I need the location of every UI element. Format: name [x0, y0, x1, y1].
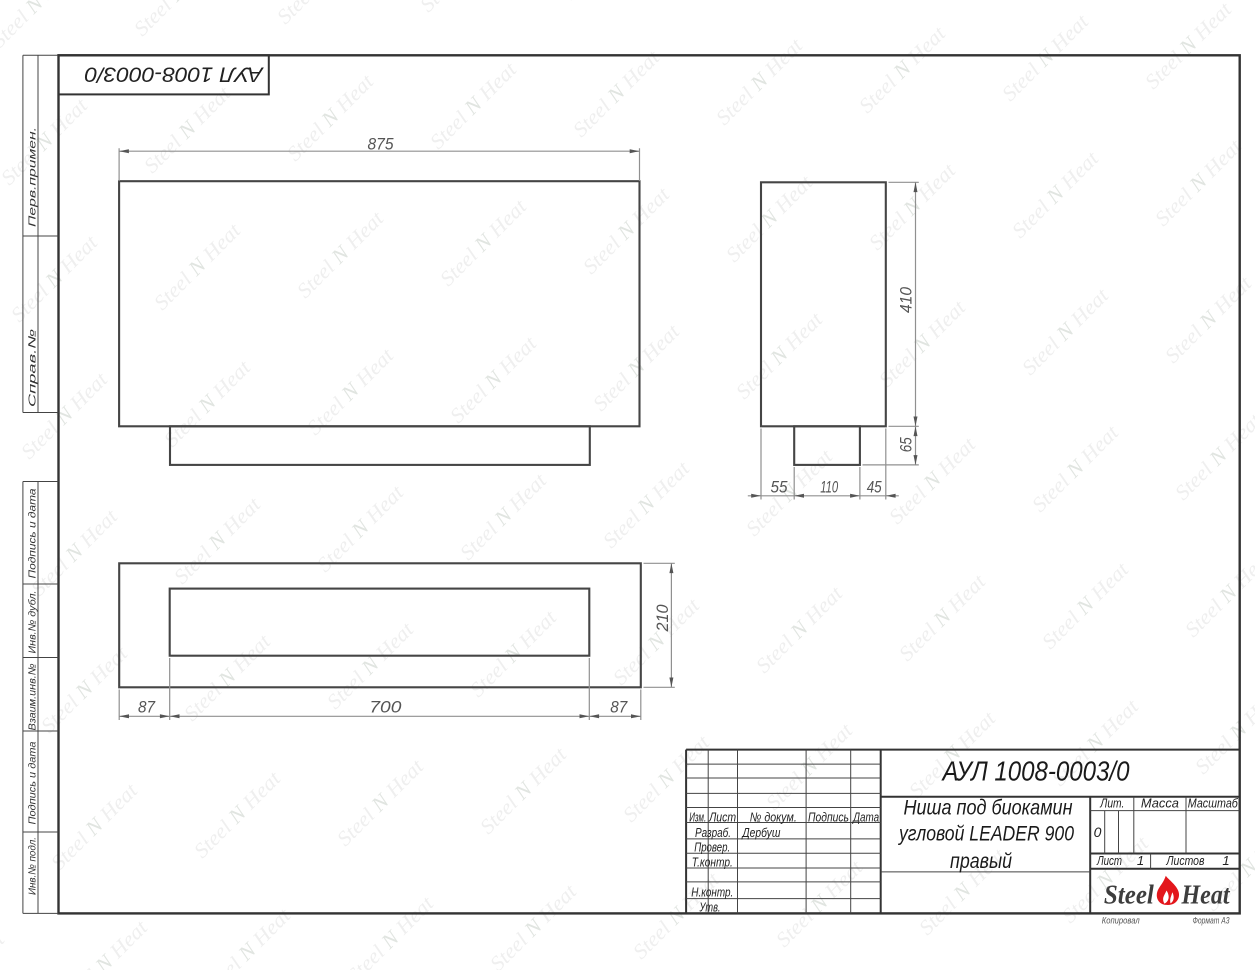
svg-text:Steel N Heat: Steel N Heat: [46, 778, 143, 875]
svg-text:правый: правый: [950, 849, 1012, 873]
svg-text:Подпись и дата: Подпись и дата: [26, 741, 38, 824]
svg-text:АУЛ 1008-0003/0: АУЛ 1008-0003/0: [941, 756, 1130, 787]
svg-text:Steel N Heat: Steel N Heat: [485, 879, 582, 970]
svg-text:Steel N Heat: Steel N Heat: [0, 927, 10, 970]
svg-text:Steel N Heat: Steel N Heat: [731, 307, 828, 404]
svg-text:Steel N Heat: Steel N Heat: [26, 504, 123, 601]
svg-text:Лит.: Лит.: [1100, 796, 1125, 811]
svg-text:Steel N Heat: Steel N Heat: [761, 718, 858, 815]
svg-text:Steel N Heat: Steel N Heat: [292, 206, 389, 303]
svg-text:Лист: Лист: [708, 809, 736, 824]
svg-text:Ниша под биокамин: Ниша под биокамин: [904, 796, 1073, 820]
svg-text:Steel N Heat: Steel N Heat: [302, 343, 399, 440]
svg-text:Масса: Масса: [1141, 796, 1179, 811]
svg-text:45: 45: [867, 478, 882, 497]
svg-text:угловой LEADER 900: угловой LEADER 900: [897, 822, 1074, 846]
svg-text:Steel N Heat: Steel N Heat: [1210, 956, 1255, 970]
svg-text:Steel N Heat: Steel N Heat: [0, 93, 93, 190]
svg-text:Steel N Heat: Steel N Heat: [894, 569, 991, 666]
svg-text:Steel N Heat: Steel N Heat: [149, 218, 246, 315]
svg-text:Steel N Heat: Steel N Heat: [588, 319, 685, 416]
svg-text:410: 410: [896, 287, 915, 313]
svg-text:Steel N Heat: Steel N Heat: [1180, 545, 1255, 642]
svg-text:Steel N Heat: Steel N Heat: [56, 915, 153, 970]
svg-text:Взаим.инв.№: Взаим.инв.№: [26, 664, 38, 731]
svg-text:Утв.: Утв.: [699, 899, 721, 914]
svg-text:Steel N Heat: Steel N Heat: [568, 45, 665, 142]
svg-text:Steel N Heat: Steel N Heat: [455, 468, 552, 565]
svg-text:Провер.: Провер.: [694, 840, 730, 855]
svg-text:№ докум.: № докум.: [750, 809, 797, 824]
svg-text:Steel: Steel: [1104, 880, 1154, 910]
svg-text:Н.контр.: Н.контр.: [691, 885, 733, 900]
svg-text:Steel N Heat: Steel N Heat: [475, 742, 572, 839]
svg-text:Steel N Heat: Steel N Heat: [1027, 420, 1124, 517]
svg-text:Разраб.: Разраб.: [695, 825, 731, 840]
svg-text:Steel N Heat: Steel N Heat: [435, 194, 532, 291]
svg-text:Копировал: Копировал: [1102, 916, 1140, 926]
svg-text:Инв.№ подл.: Инв.№ подл.: [26, 837, 38, 895]
svg-text:Подпись: Подпись: [808, 809, 849, 824]
svg-text:Дербуш: Дербуш: [741, 825, 781, 840]
svg-text:0: 0: [1094, 824, 1102, 840]
svg-text:Steel N Heat: Steel N Heat: [1150, 134, 1247, 231]
svg-text:Листов: Листов: [1166, 853, 1205, 868]
svg-text:Steel N Heat: Steel N Heat: [1190, 682, 1255, 779]
svg-text:Steel N Heat: Steel N Heat: [445, 331, 542, 428]
svg-text:Steel N Heat: Steel N Heat: [312, 480, 409, 577]
svg-text:Steel N Heat: Steel N Heat: [997, 9, 1094, 106]
svg-text:87: 87: [610, 698, 627, 717]
svg-text:Steel N Heat: Steel N Heat: [332, 754, 429, 851]
svg-text:Steel N Heat: Steel N Heat: [169, 492, 266, 589]
svg-text:65: 65: [896, 437, 915, 452]
svg-text:Steel N Heat: Steel N Heat: [159, 355, 256, 452]
svg-text:1: 1: [1222, 853, 1229, 868]
svg-text:110: 110: [820, 478, 838, 497]
svg-text:Steel N Heat: Steel N Heat: [864, 158, 961, 255]
svg-text:Steel N Heat: Steel N Heat: [771, 855, 868, 952]
svg-text:Steel N Heat: Steel N Heat: [578, 182, 675, 279]
svg-text:875: 875: [368, 135, 394, 154]
svg-text:Изм.: Изм.: [689, 809, 706, 824]
svg-text:Steel N Heat: Steel N Heat: [189, 766, 286, 863]
svg-text:Steel N Heat: Steel N Heat: [598, 456, 695, 553]
svg-text:Steel N Heat: Steel N Heat: [425, 57, 522, 154]
svg-text:Подпись и дата: Подпись и дата: [26, 488, 38, 578]
svg-text:Steel N Heat: Steel N Heat: [904, 706, 1001, 803]
svg-text:Дата: Дата: [852, 809, 880, 824]
svg-text:700: 700: [369, 698, 402, 717]
svg-text:Справ.№: Справ.№: [26, 329, 38, 407]
svg-text:Steel N Heat: Steel N Heat: [1037, 557, 1134, 654]
svg-text:Steel N Heat: Steel N Heat: [6, 230, 103, 327]
svg-text:Т.контр.: Т.контр.: [692, 855, 733, 870]
svg-text:Steel N Heat: Steel N Heat: [1017, 283, 1114, 380]
svg-text:Steel N Heat: Steel N Heat: [1140, 0, 1237, 94]
svg-text:Steel N Heat: Steel N Heat: [558, 0, 655, 5]
svg-text:Steel N Heat: Steel N Heat: [721, 170, 818, 267]
svg-text:Формат А3: Формат А3: [1193, 916, 1230, 926]
svg-text:55: 55: [771, 478, 788, 497]
svg-text:1: 1: [1137, 853, 1144, 868]
svg-text:Steel N Heat: Steel N Heat: [1007, 146, 1104, 243]
svg-text:Steel N Heat: Steel N Heat: [415, 0, 512, 17]
svg-text:Steel N Heat: Steel N Heat: [854, 21, 951, 118]
svg-text:Steel N Heat: Steel N Heat: [1170, 408, 1255, 505]
svg-text:Steel N Heat: Steel N Heat: [179, 629, 276, 726]
svg-text:Steel N Heat: Steel N Heat: [711, 33, 808, 130]
svg-text:Перв.примен.: Перв.примен.: [26, 127, 38, 227]
svg-text:Steel N Heat: Steel N Heat: [628, 867, 725, 964]
svg-text:Steel N Heat: Steel N Heat: [0, 0, 83, 53]
svg-text:Steel N Heat: Steel N Heat: [874, 295, 971, 392]
svg-text:Steel N Heat: Steel N Heat: [129, 0, 226, 41]
svg-text:АУЛ 1008-0003/0: АУЛ 1008-0003/0: [85, 63, 265, 87]
svg-text:87: 87: [138, 698, 155, 717]
svg-text:Масштаб: Масштаб: [1188, 796, 1239, 811]
svg-text:Heat: Heat: [1181, 880, 1231, 910]
svg-text:Steel N Heat: Steel N Heat: [342, 891, 439, 970]
svg-text:Steel N Heat: Steel N Heat: [751, 581, 848, 678]
svg-text:Лист: Лист: [1096, 853, 1122, 868]
svg-text:Инв.№ дубл.: Инв.№ дубл.: [26, 591, 38, 654]
svg-text:210: 210: [653, 604, 672, 632]
svg-text:Steel N Heat: Steel N Heat: [272, 0, 369, 29]
